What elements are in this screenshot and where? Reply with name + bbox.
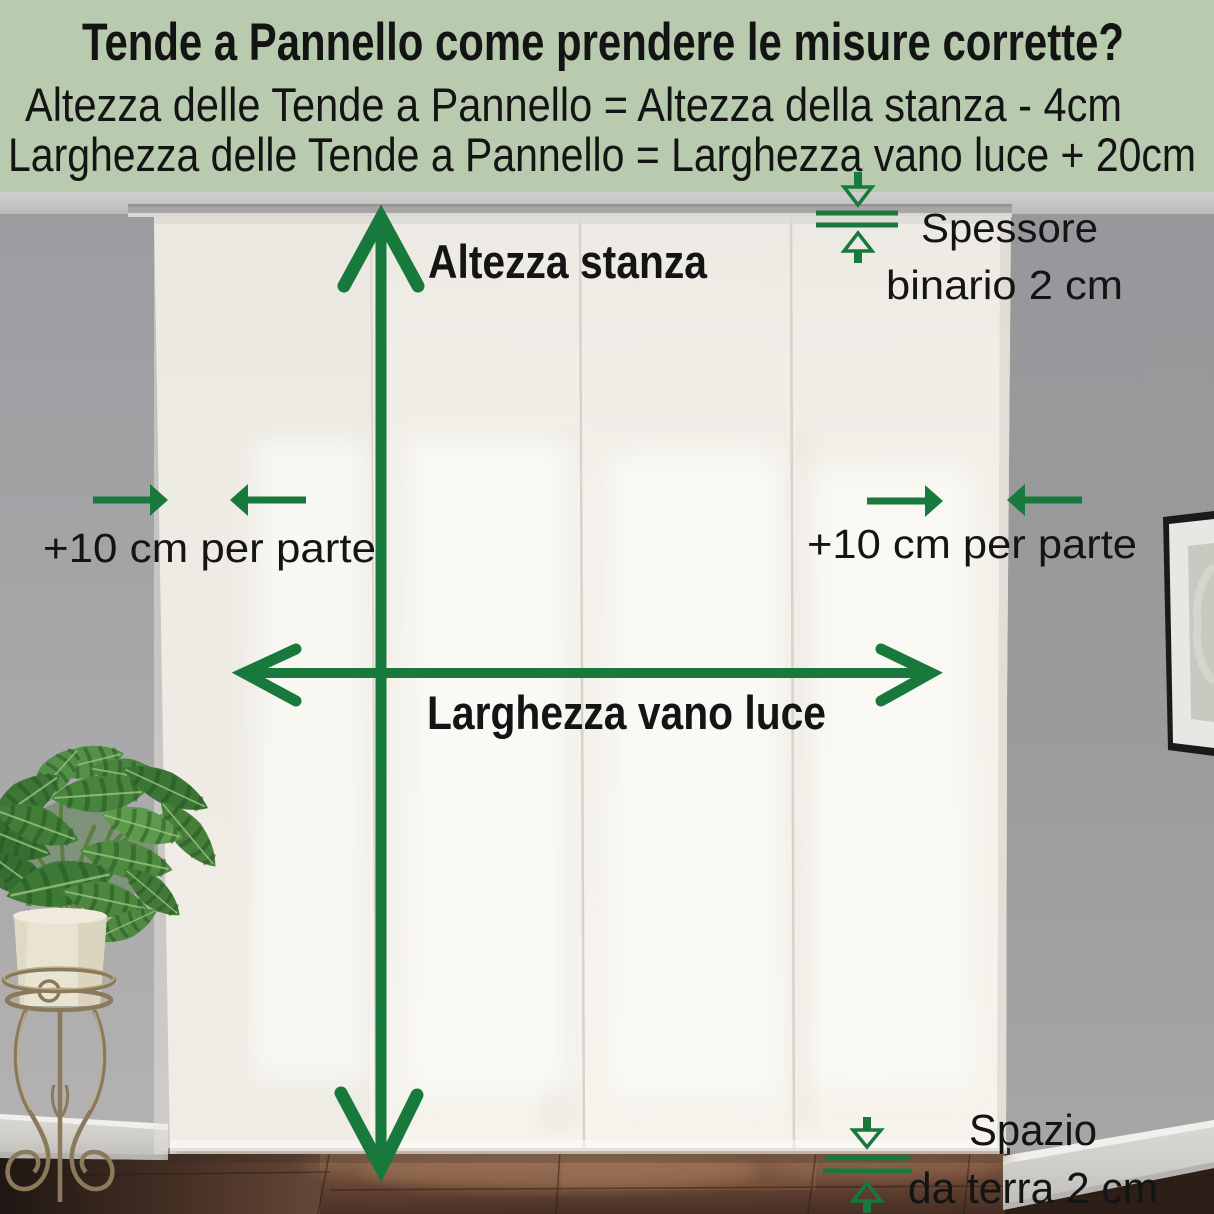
svg-text:binario 2 cm: binario 2 cm <box>886 262 1123 308</box>
svg-text:Altezza stanza: Altezza stanza <box>428 235 708 288</box>
svg-text:Altezza delle Tende a Pannello: Altezza delle Tende a Pannello = Altezza… <box>25 78 1122 131</box>
svg-text:Tende a Pannello come prendere: Tende a Pannello come prendere le misure… <box>82 13 1124 72</box>
svg-text:da terra 2 cm: da terra 2 cm <box>908 1164 1158 1213</box>
svg-text:Larghezza delle Tende a Pannel: Larghezza delle Tende a Pannello = Largh… <box>8 128 1196 181</box>
svg-text:Spessore: Spessore <box>921 205 1098 251</box>
svg-text:Spazio: Spazio <box>969 1106 1097 1155</box>
svg-text:+10 cm per parte: +10 cm per parte <box>43 525 376 571</box>
svg-text:Larghezza vano luce: Larghezza vano luce <box>427 686 826 739</box>
svg-text:+10 cm per parte: +10 cm per parte <box>807 521 1137 567</box>
